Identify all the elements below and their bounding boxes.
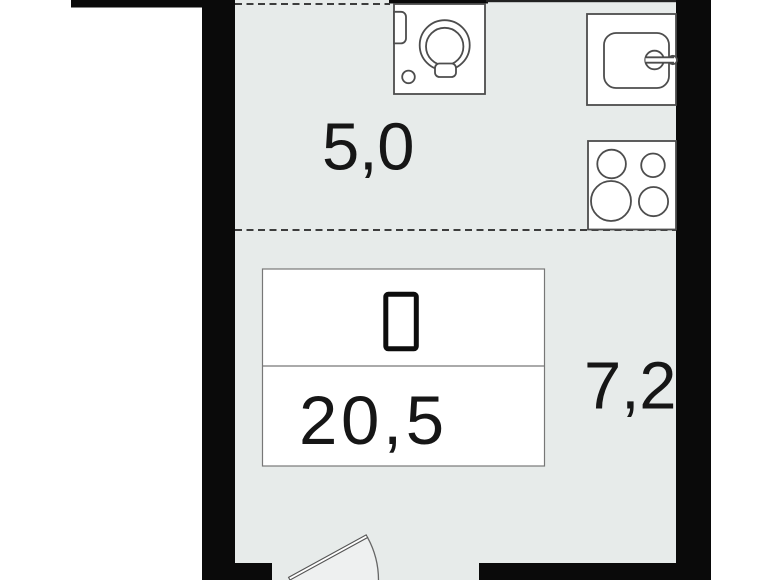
svg-text:5,0: 5,0 [322,110,414,185]
svg-text:7,2: 7,2 [584,349,676,424]
svg-text:20,5: 20,5 [299,382,448,459]
